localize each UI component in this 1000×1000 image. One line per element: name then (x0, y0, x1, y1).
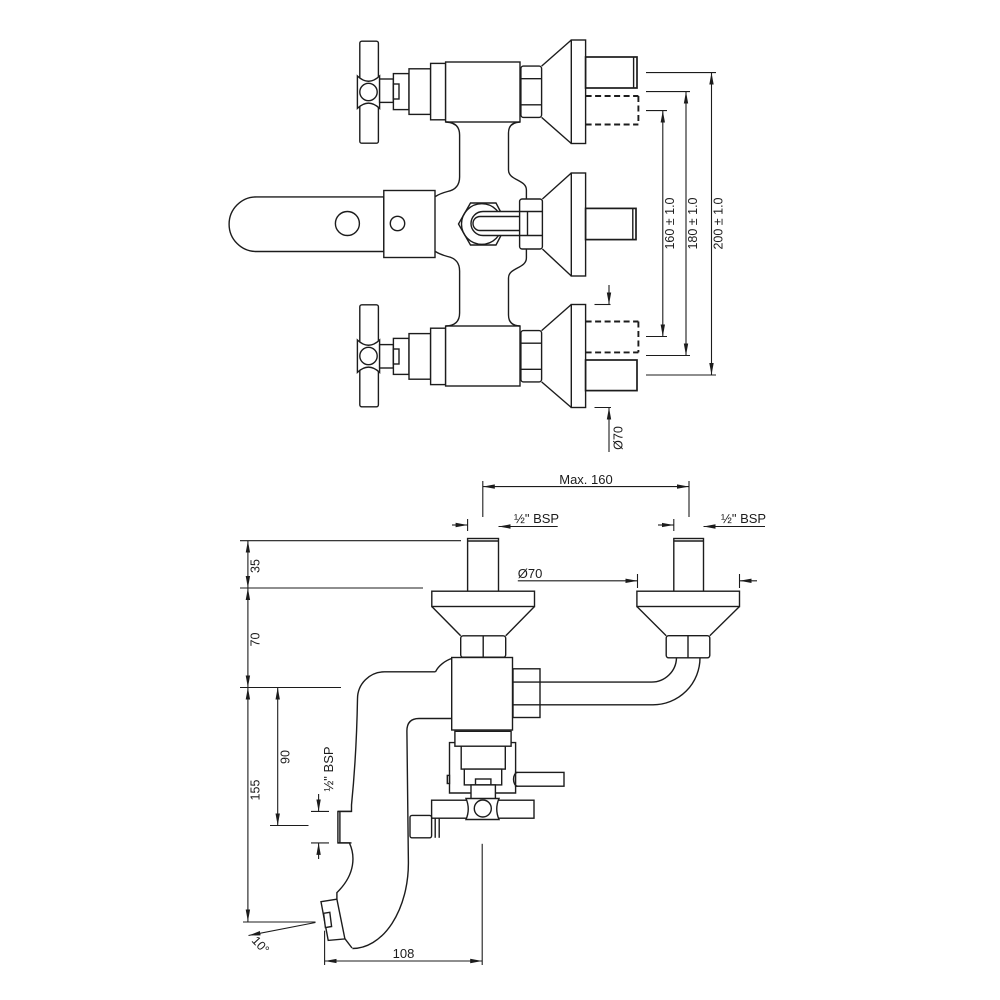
svg-text:155: 155 (249, 780, 263, 801)
svg-text:Max. 160: Max. 160 (559, 472, 612, 487)
svg-text:90: 90 (279, 750, 293, 764)
svg-text:35: 35 (249, 559, 263, 573)
svg-text:200 ± 1.0: 200 ± 1.0 (712, 197, 726, 249)
svg-text:Ø70: Ø70 (612, 426, 626, 450)
svg-text:10°: 10° (249, 933, 272, 956)
svg-text:108: 108 (393, 946, 415, 961)
svg-text:160 ± 1.0: 160 ± 1.0 (663, 197, 677, 249)
svg-text:Ø70: Ø70 (518, 566, 543, 581)
svg-text:70: 70 (249, 633, 263, 647)
svg-text:½" BSP: ½" BSP (321, 746, 336, 791)
svg-text:½" BSP: ½" BSP (721, 511, 766, 526)
svg-text:½" BSP: ½" BSP (514, 511, 559, 526)
svg-text:180 ± 1.0: 180 ± 1.0 (686, 197, 700, 249)
